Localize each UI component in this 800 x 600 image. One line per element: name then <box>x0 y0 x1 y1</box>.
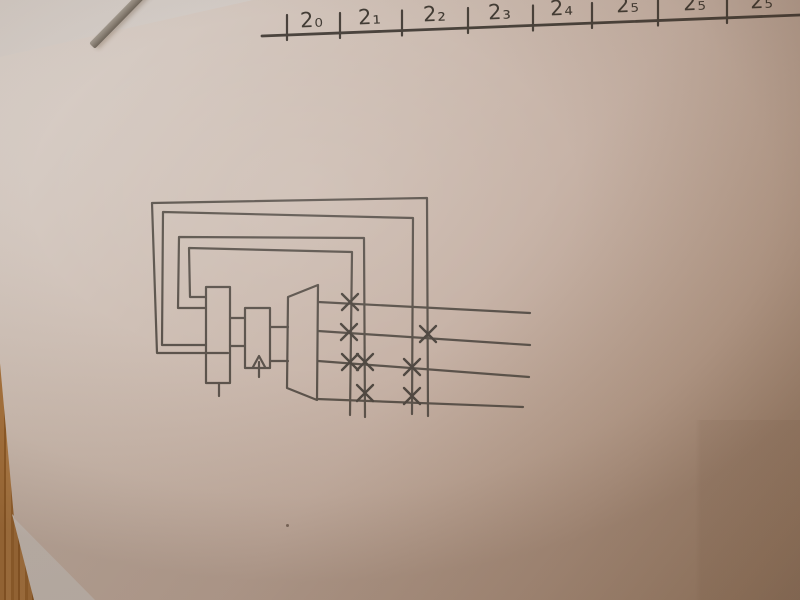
junction-cross <box>342 294 358 310</box>
output-lines <box>317 302 530 407</box>
header-cell-label: 2₄ <box>549 0 574 21</box>
header-cell-label: 2₅ <box>682 0 707 16</box>
register-block <box>206 287 230 396</box>
table-baseline <box>262 15 800 36</box>
header-cell-label: 2₀ <box>299 7 324 32</box>
converter-trapezoid <box>287 285 318 400</box>
photo-of-hand-drawn-diagram: 2₀ 2₁ 2₂ 2₃ 2₄ 2₅ 2₅ 2₅ <box>0 0 800 600</box>
header-cell-label: 2₃ <box>487 0 512 25</box>
table-header-lines <box>262 0 800 40</box>
pencil-sketch <box>0 0 800 600</box>
feedback-loops <box>152 198 428 417</box>
block-connectors <box>230 318 288 361</box>
junction-cross-marks <box>341 294 436 404</box>
header-cell-label: 2₁ <box>357 4 382 29</box>
paper-speck <box>286 524 289 527</box>
clock-arrow-icon <box>253 356 265 377</box>
header-cell-label: 2₅ <box>615 0 640 18</box>
header-cell-label: 2₅ <box>749 0 774 14</box>
header-cell-label: 2₂ <box>422 1 447 26</box>
